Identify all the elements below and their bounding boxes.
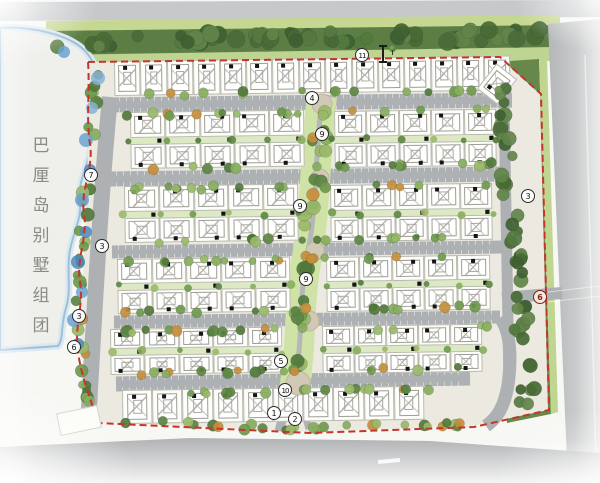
legend-marker-9: 9 [315, 127, 329, 141]
legend-marker-11: 11 [355, 48, 369, 62]
legend-marker-4: 4 [305, 91, 319, 105]
section-cap-icon [379, 61, 387, 63]
site-title-char: 厘 [30, 161, 52, 186]
legend-marker-1: 1 [267, 406, 281, 420]
plant-icon [389, 45, 396, 52]
site-title-char: 团 [30, 311, 52, 336]
legend-marker-9: 9 [293, 199, 307, 213]
legend-marker-9: 9 [299, 272, 313, 286]
section-cut-icon [379, 44, 399, 64]
legend-marker-6: 6 [67, 340, 81, 354]
site-title: 巴厘岛别墅组团 [30, 131, 52, 341]
section-cap-icon [379, 45, 387, 47]
legend-marker-10: 10 [278, 383, 292, 397]
site-title-char: 别 [30, 221, 52, 246]
site-title-char: 墅 [30, 251, 52, 276]
site-title-char: 巴 [30, 131, 52, 156]
legend-marker-5: 5 [274, 354, 288, 368]
site-plan: 巴厘岛别墅组团 11497393936510126 [0, 0, 600, 483]
legend-marker-6: 6 [533, 290, 547, 304]
site-title-char: 岛 [30, 191, 52, 216]
site-title-char: 组 [30, 281, 52, 306]
legend-marker-3: 3 [521, 189, 535, 203]
legend-marker-2: 2 [288, 412, 302, 426]
legend-marker-7: 7 [84, 168, 98, 182]
legend-marker-3: 3 [95, 239, 109, 253]
section-bar-icon [382, 46, 384, 61]
legend-marker-3: 3 [72, 309, 86, 323]
